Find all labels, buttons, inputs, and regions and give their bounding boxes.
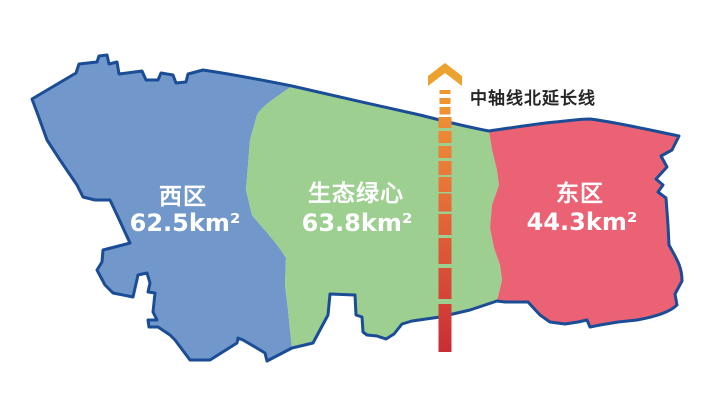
map-infographic: 中轴线北延长线 西区 62.5km² 生态绿心 63.8km² 东区 44.3k… xyxy=(0,0,718,407)
east-district-name-label: 东区 xyxy=(556,180,604,207)
green-heart-name-label: 生态绿心 xyxy=(308,180,404,207)
axis-arrow-icon xyxy=(428,63,462,86)
green-heart-area-label: 63.8km² xyxy=(302,209,413,237)
east-district-area-label: 44.3km² xyxy=(527,208,638,236)
west-district-area-label: 62.5km² xyxy=(130,209,241,237)
axis-label: 中轴线北延长线 xyxy=(470,88,596,109)
district-map-svg: 中轴线北延长线 西区 62.5km² 生态绿心 63.8km² 东区 44.3k… xyxy=(0,0,718,407)
west-district-name-label: 西区 xyxy=(159,184,207,210)
